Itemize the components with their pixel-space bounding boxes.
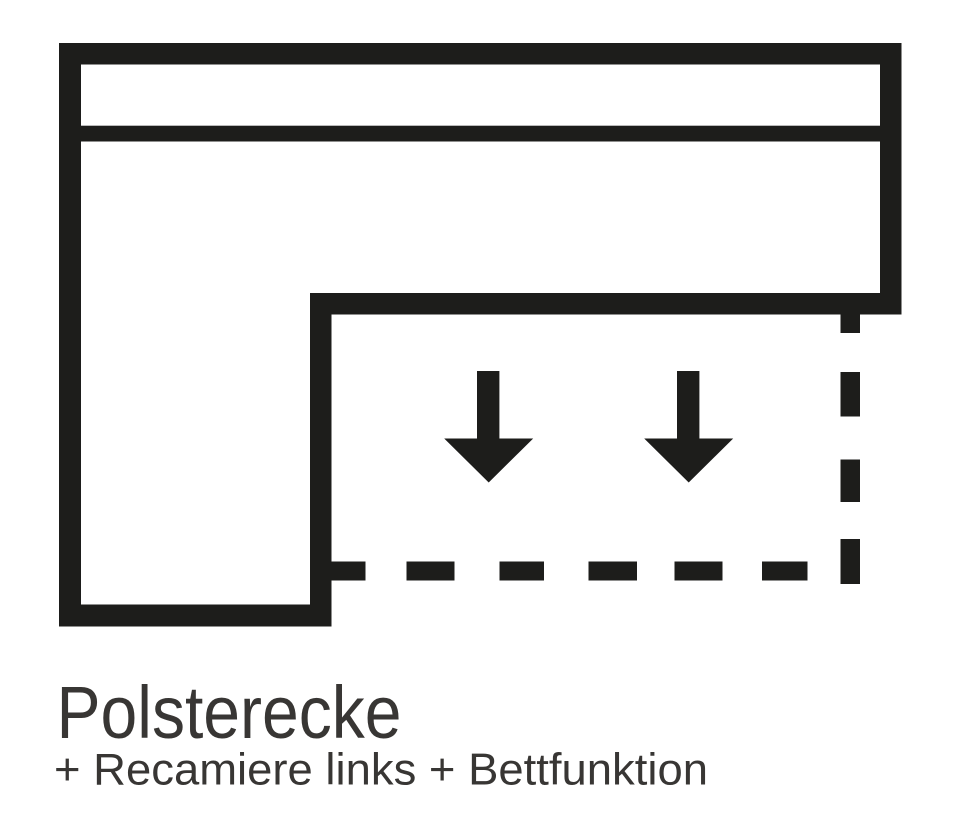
svg-text:+ Recamiere links + Bettfunkti: + Recamiere links + Bettfunktion: [54, 746, 708, 795]
svg-text:Polsterecke: Polsterecke: [57, 671, 402, 754]
